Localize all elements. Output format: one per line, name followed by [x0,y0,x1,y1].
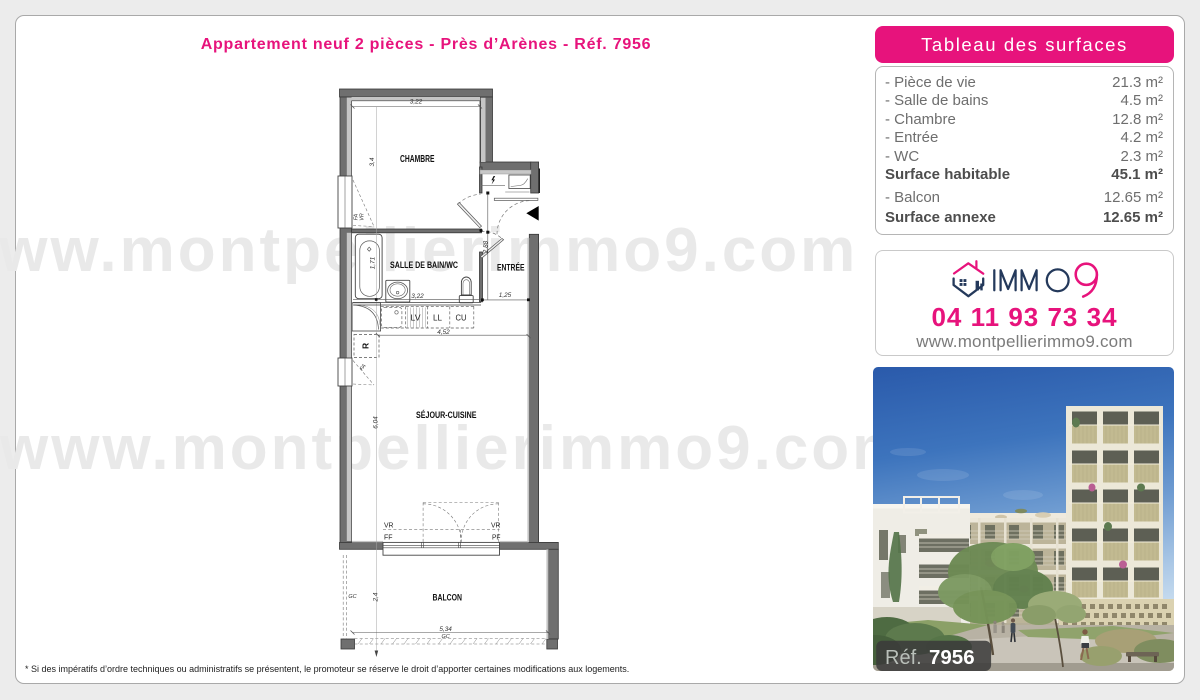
svg-text:R: R [361,343,371,349]
svg-text:CU: CU [456,314,467,323]
svg-text:BALCON: BALCON [433,593,463,603]
svg-text:FF: FF [384,533,393,542]
svg-text:GC: GC [441,634,449,640]
svg-text:VR: VR [360,213,366,221]
svg-text:LV: LV [411,314,422,323]
svg-text:1,71: 1,71 [370,256,377,269]
svg-text:1,25: 1,25 [499,292,512,299]
svg-text:2,88: 2,88 [483,240,490,254]
svg-text:6,04: 6,04 [372,416,379,429]
svg-text:3,4: 3,4 [369,157,376,166]
svg-text:4,52: 4,52 [437,329,450,336]
svg-text:ENTRÉE: ENTRÉE [497,263,525,273]
svg-text:VR: VR [491,521,501,530]
svg-text:5,34: 5,34 [439,626,452,633]
svg-text:GC: GC [348,594,356,600]
svg-text:LL: LL [433,314,443,323]
svg-text:3,22: 3,22 [410,99,423,106]
svg-text:7956: 7956 [929,646,975,669]
svg-text:VR: VR [384,521,394,530]
svg-text:3,22: 3,22 [411,293,424,300]
svg-text:Réf.: Réf. [885,647,922,669]
svg-text:SÉJOUR-CUISINE: SÉJOUR-CUISINE [416,410,477,420]
svg-text:SALLE DE BAIN/WC: SALLE DE BAIN/WC [390,260,459,270]
svg-text:2,4: 2,4 [372,592,379,602]
svg-text:CHAMBRE: CHAMBRE [400,154,435,165]
svg-text:PF: PF [492,533,501,542]
svg-text:FA: FA [359,363,368,372]
